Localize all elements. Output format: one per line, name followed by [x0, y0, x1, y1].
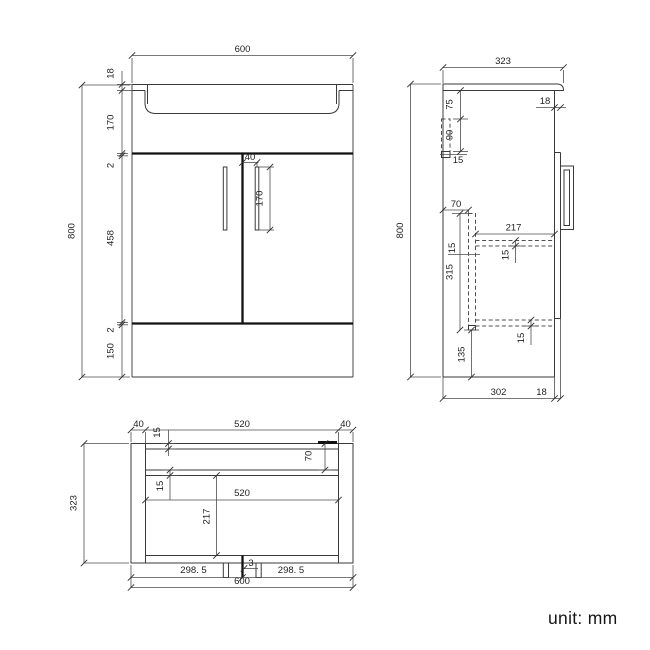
- back-rail: [469, 214, 476, 331]
- dim-front-basin: 170: [106, 115, 117, 131]
- dim-front-plinth: 150: [106, 343, 117, 359]
- dim-plan-rail-thickness: 15: [155, 481, 166, 492]
- dim-side-height: 800: [395, 223, 406, 239]
- front-dimensions: 600 800 18 170 2 458 2 150 40 170: [67, 44, 357, 380]
- dim-side-rail-height: 315: [445, 264, 456, 280]
- front-view: 600 800 18 170 2 458 2 150 40 170: [67, 44, 357, 380]
- dim-plan-inner-width-top: 520: [234, 419, 250, 430]
- side-dimensions: 323 800 18 75 90 15 70 217 15 315 15 15 …: [395, 56, 567, 402]
- dim-front-top-thickness: 18: [106, 68, 117, 79]
- dim-side-rail-thickness: 15: [447, 243, 458, 254]
- dim-front-handle-length: 170: [255, 191, 266, 207]
- plan-handle-right: [256, 563, 261, 578]
- dim-side-depth: 323: [495, 56, 511, 67]
- technical-drawing: 600 800 18 170 2 458 2 150 40 170: [0, 0, 650, 650]
- dim-plan-inner-width: 520: [234, 488, 250, 499]
- side-handle: [561, 166, 574, 230]
- dim-side-bracket-height: 90: [445, 130, 456, 141]
- dim-side-door-top: 18: [540, 96, 551, 107]
- unit-label: unit: mm: [548, 608, 648, 629]
- dim-front-width: 600: [235, 44, 251, 55]
- dim-plan-right-panel: 40: [340, 419, 351, 430]
- plan-dimensions: 40 520 40 15 70 15 520 217 3 298. 5 298.…: [69, 419, 357, 591]
- dim-side-door-bottom: 18: [536, 387, 547, 398]
- dim-plan-back-thickness: 15: [152, 427, 163, 438]
- dim-side-plinth-space: 135: [457, 347, 468, 363]
- dim-plan-depth: 323: [69, 495, 80, 511]
- dim-plan-door-gap: 3: [248, 558, 253, 569]
- side-handle-inner: [564, 170, 570, 226]
- dim-front-height: 800: [67, 223, 78, 239]
- dim-side-bracket-offset: 75: [445, 99, 456, 110]
- dim-plan-right-half: 298. 5: [278, 565, 304, 576]
- dim-plan-rail-offset: 70: [304, 451, 315, 462]
- dim-side-body-depth: 302: [491, 387, 507, 398]
- dim-side-rail-offset: 70: [451, 199, 462, 210]
- dim-front-handle-offset: 40: [245, 152, 256, 163]
- basin-bowl: [145, 91, 339, 114]
- left-door-handle: [223, 167, 227, 230]
- dim-side-shelf-depth: 217: [506, 223, 522, 234]
- side-view: 323 800 18 75 90 15 70 217 15 315 15 15 …: [395, 56, 574, 402]
- dim-side-shelf-thickness: 15: [501, 250, 512, 261]
- dim-plan-left-panel: 40: [133, 419, 144, 430]
- plan-handle-left: [223, 563, 228, 578]
- dim-front-door-height: 458: [106, 230, 117, 246]
- dim-side-bottom-shelf: 15: [516, 333, 527, 344]
- dim-plan-interior-depth: 217: [202, 509, 213, 525]
- dim-side-bracket-rail: 15: [453, 155, 464, 166]
- dim-plan-left-half: 298. 5: [180, 565, 206, 576]
- dim-front-gap-top: 2: [106, 163, 117, 168]
- dim-front-gap-bottom: 2: [106, 327, 117, 332]
- dim-plan-width: 600: [234, 576, 250, 587]
- plan-view: 40 520 40 15 70 15 520 217 3 298. 5 298.…: [69, 419, 357, 591]
